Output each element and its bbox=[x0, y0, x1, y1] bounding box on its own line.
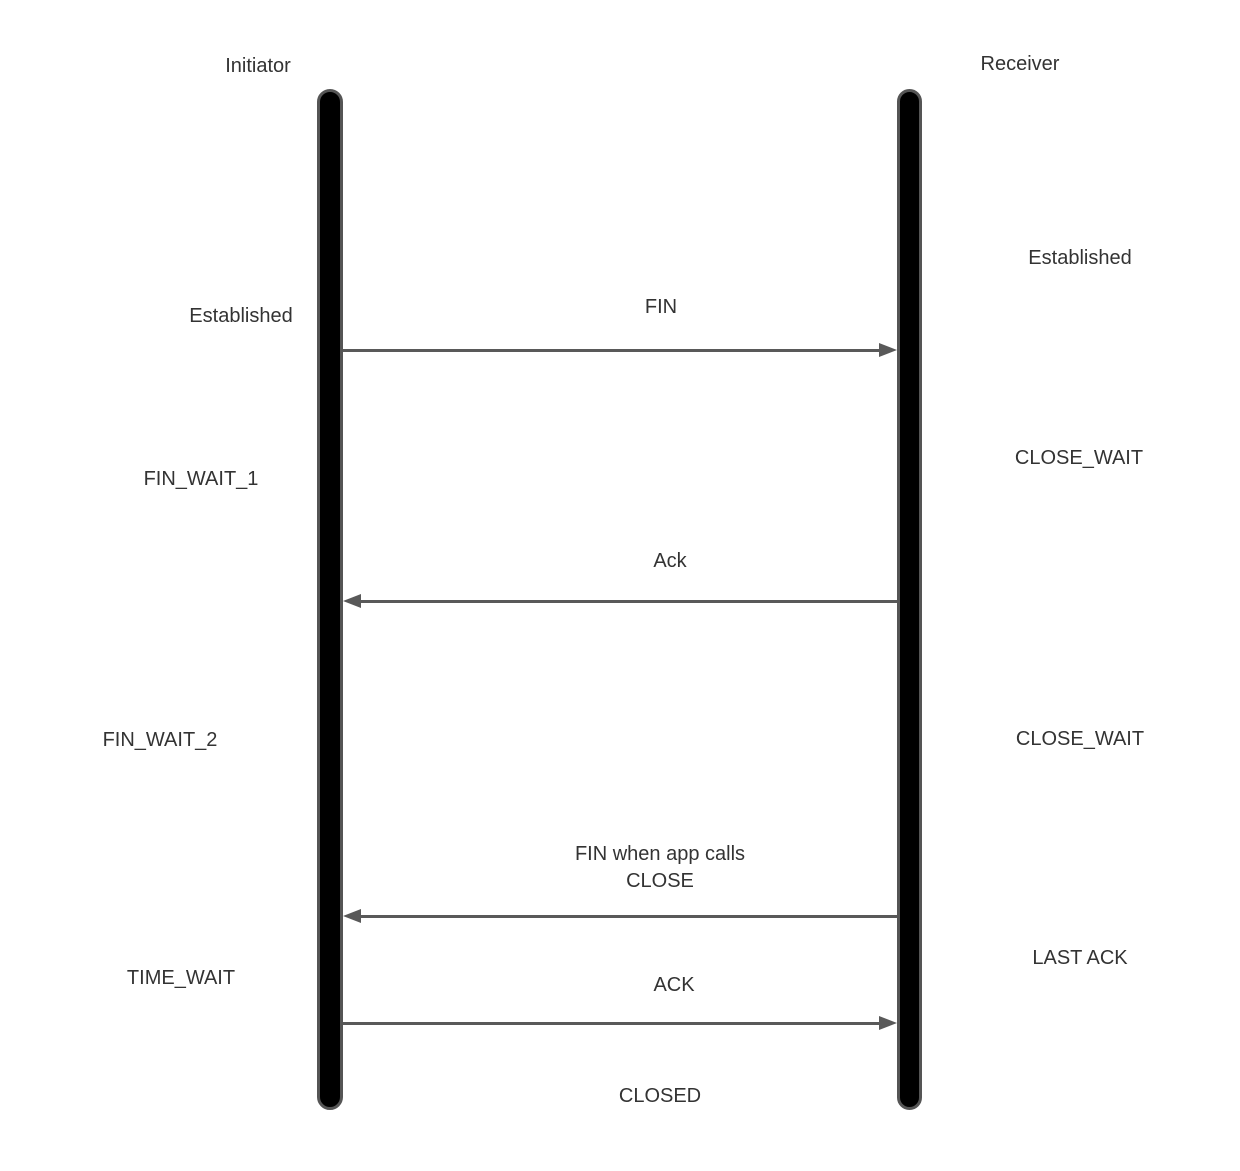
participant-label-receiver: Receiver bbox=[981, 51, 1060, 77]
message-label-fin-on-close: FIN when app calls CLOSE bbox=[575, 841, 745, 895]
state-label-receiver-last-ack: LAST ACK bbox=[1032, 945, 1127, 971]
message-label-line1: FIN when app calls bbox=[575, 841, 745, 868]
state-label-receiver-close-wait-2: CLOSE_WAIT bbox=[1016, 726, 1144, 752]
state-label-receiver-close-wait-1: CLOSE_WAIT bbox=[1015, 445, 1143, 471]
lifeline-receiver bbox=[897, 89, 922, 1110]
state-label-initiator-fin-wait-2: FIN_WAIT_2 bbox=[103, 727, 218, 753]
message-label-ack: Ack bbox=[653, 548, 686, 574]
arrowhead-right-icon bbox=[879, 1016, 897, 1030]
state-label-initiator-established: Established bbox=[189, 303, 292, 329]
sequence-diagram: Initiator Receiver FIN Ack FIN when app … bbox=[0, 0, 1240, 1171]
arrow-shaft bbox=[343, 1022, 881, 1025]
state-label-initiator-time-wait: TIME_WAIT bbox=[127, 965, 235, 991]
message-label-line2: CLOSE bbox=[575, 868, 745, 895]
lifeline-initiator bbox=[317, 89, 343, 1110]
message-label-last-ack: ACK bbox=[653, 972, 694, 998]
arrow-shaft bbox=[359, 600, 897, 603]
state-label-initiator-fin-wait-1: FIN_WAIT_1 bbox=[144, 466, 259, 492]
participant-label-initiator: Initiator bbox=[225, 53, 291, 79]
message-label-fin: FIN bbox=[645, 294, 677, 320]
arrowhead-left-icon bbox=[343, 594, 361, 608]
arrowhead-left-icon bbox=[343, 909, 361, 923]
state-label-receiver-established: Established bbox=[1028, 245, 1131, 271]
arrow-shaft bbox=[359, 915, 897, 918]
state-label-closed: CLOSED bbox=[619, 1083, 701, 1109]
arrowhead-right-icon bbox=[879, 343, 897, 357]
arrow-shaft bbox=[343, 349, 881, 352]
